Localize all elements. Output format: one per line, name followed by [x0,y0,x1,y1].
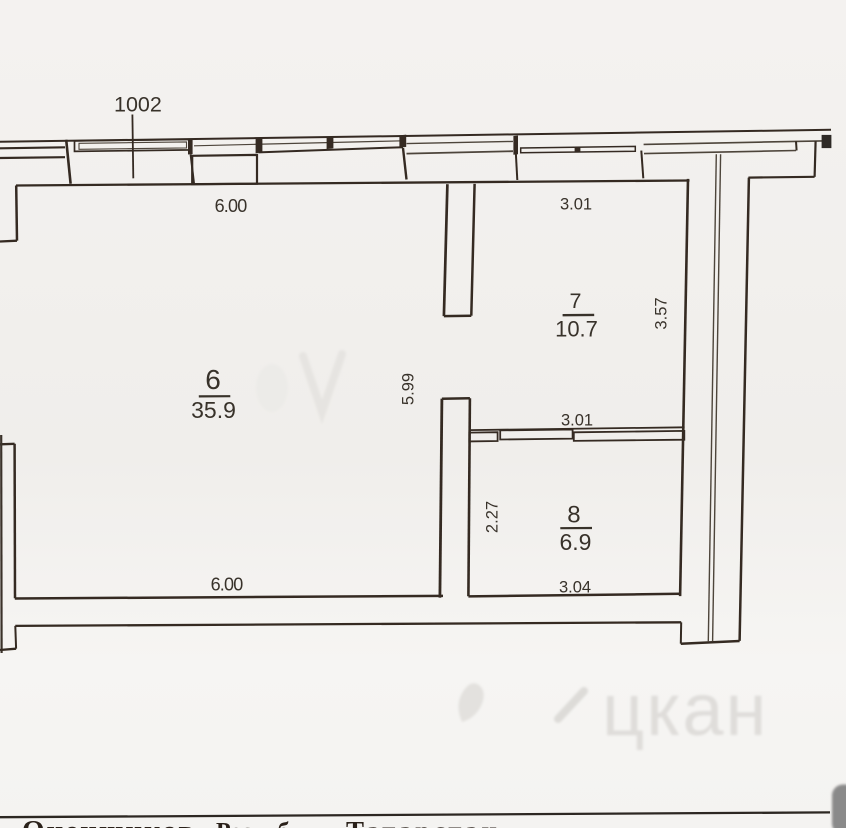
svg-text:3.01: 3.01 [561,411,593,429]
svg-text:5.99: 5.99 [400,373,418,405]
svg-text:3.01: 3.01 [560,195,592,213]
svg-text:35.9: 35.9 [191,397,236,423]
svg-text:6.9: 6.9 [560,529,592,555]
svg-text:6.00: 6.00 [215,196,248,216]
svg-text:Республики: Республики [216,819,344,828]
svg-text:1002: 1002 [114,93,162,117]
svg-text:6: 6 [205,364,221,395]
svg-text:Оценщиков: Оценщиков [22,815,196,828]
svg-text:7: 7 [570,289,582,313]
svg-text:2.27: 2.27 [484,501,502,533]
svg-text:3.04: 3.04 [559,578,591,596]
svg-text:3.57: 3.57 [653,297,671,329]
svg-text:8: 8 [567,501,580,528]
svg-text:10.7: 10.7 [555,317,598,342]
svg-text:цкан: цкан [602,668,768,751]
svg-text:Татарстан: Татарстан [346,816,500,828]
svg-text:6.00: 6.00 [211,575,244,595]
